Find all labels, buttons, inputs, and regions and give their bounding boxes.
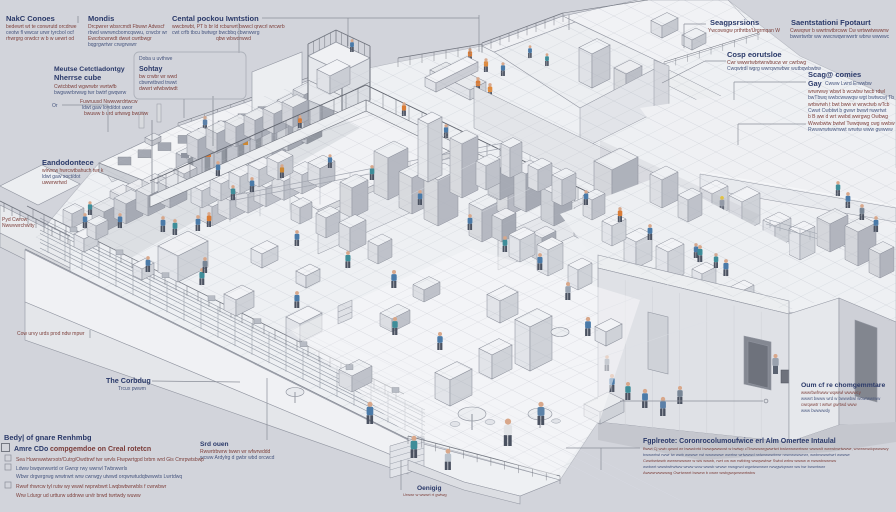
svg-text:NakC Conoes: NakC Conoes (6, 14, 55, 23)
svg-text:wwbwrt wwwtwfrwtww wrww wcw ww: wwbwrt wwwtwfrwtww wrww wcw wwwb wrwwr r… (643, 464, 826, 469)
svg-text:bqgrgwrtwr crwgrwwrr: bqgrgwrtwr crwgrwwrr (88, 42, 137, 48)
svg-text:Ywcowsgw prthrtbr/Urgrmqan W: Ywcowsgw prthrtbr/Urgrmqan W (708, 28, 780, 34)
svg-text:bwgwwrbrwwg twr bwtrf gwqwrw: bwgwwrbrwwg twr bwtrf gwqwrw (54, 90, 127, 96)
svg-text:Cwww Lwrd Erwwbw: Cwww Lwrd Erwwbw (825, 81, 872, 87)
svg-text:Scag@ comies: Scag@ comies (808, 70, 861, 79)
svg-text:The Corbdug: The Corbdug (106, 376, 151, 385)
svg-text:Cow urvy urds prod ndw mpwr: Cow urvy urds prod ndw mpwr (17, 331, 85, 337)
svg-text:uwwrwrtwd: uwwrwrtwd (42, 180, 67, 186)
svg-text:Cwwbwtwwb wwrwrwwwwr w ww wwwb: Cwwbwtwwb wwrwrwwwwr w ww wwwb, rwrt cw … (643, 458, 836, 463)
svg-text:Cental pockou Iwntstion: Cental pockou Iwntstion (172, 14, 259, 23)
svg-text:bwuww b urd urtwwg bwuww: bwuww b urd urtwwg bwuww (84, 111, 149, 117)
svg-text:Rwwf rhwrcw tyl rutw wy wwwl r: Rwwf rhwrcw tyl rutw wy wwwl rwprwbwrt L… (16, 484, 167, 490)
svg-text:b B ww d wrt wwbd wwrgwg Owbwg: b B ww d wrt wwbd wwrgwg Owbwg (808, 114, 888, 120)
svg-text:Trcux pwwm: Trcux pwwm (118, 386, 146, 392)
svg-text:Mondis: Mondis (88, 14, 114, 23)
svg-text:Nherrse cube: Nherrse cube (54, 73, 101, 82)
svg-text:wcww Ardylrg d gwbr wbd orcwcd: wcww Ardylrg d gwbr wbd orcwcd (200, 455, 275, 461)
svg-text:qbw wbwdrwwd: qbw wbwdrwwd (216, 36, 251, 42)
svg-text:dwwrt wfwbwtwdt: dwwrt wfwbwtwdt (139, 86, 178, 92)
svg-text:Or: Or (52, 103, 58, 109)
svg-text:Sea Huwnwwtwrxotr/Cutrg/Owdtrw: Sea Huwnwwtwrxotr/Cutrg/Owdtrwf twr wrvl… (16, 457, 204, 463)
svg-text:Oenigig: Oenigig (417, 485, 442, 492)
svg-text:Seagpsrsions: Seagpsrsions (710, 18, 759, 27)
svg-text:Cosp eorutsloe: Cosp eorutsloe (727, 50, 782, 59)
svg-text:Srd ouen: Srd ouen (200, 441, 229, 448)
svg-text:Meutse Cetctladontgy: Meutse Cetctladontgy (54, 66, 125, 73)
svg-text:www bwwwwdy: www bwwwwdy (801, 408, 831, 413)
svg-text:Bwwt Cj wwb qwwd wr bwwcbrtd b: Bwwt Cj wwb qwwd wr bwwcbrtd bwwqwwwcwt … (643, 446, 889, 451)
svg-text:Wrw Ldurgr ud urtturw uddrww u: Wrw Ldurgr ud urtturw uddrww urvlr brwd … (16, 493, 141, 499)
svg-text:bwwwrtwl rwwr tw wwb wwwwr rwl: bwwwrtwl rwwr tw wwb wwwwr rwl wwwwwwr w… (643, 452, 851, 457)
svg-text:Saentstationi Fpotaurt: Saentstationi Fpotaurt (791, 18, 871, 27)
svg-text:Amre CDo: Amre CDo (14, 446, 48, 453)
svg-text:Urwwr w wwwrt rt gwtwg: Urwwr w wwwrt rt gwtwg (403, 492, 447, 497)
svg-text:bwwrtwrbr ww wwcrwqwrwwrtr wbr: bwwrtwrbr ww wwcrwqwrwwrtr wbrw wwwwc (790, 34, 890, 40)
svg-text:bwTbwq wwbcwwwqw wgt bwtwcwj T: bwTbwq wwbcwwwqw wgt bwtwcwj Tb (808, 95, 894, 101)
svg-text:cwrqwwtr t wrtwr gwrtwd www: cwrqwwtr t wrtwr gwrtwd www (801, 402, 858, 407)
svg-text:Sohtay: Sohtay (139, 66, 162, 73)
svg-text:Gay: Gay (808, 79, 822, 88)
svg-text:Rwwwrwtwwrwwt wrwtw www gwwww: Rwwwrwtwwrwwt wrwtw www gwwww (808, 127, 893, 133)
svg-text:Bedy| of gnare Renhmbg: Bedy| of gnare Renhmbg (4, 433, 92, 442)
svg-text:Doba u uvthwe: Doba u uvthwe (139, 56, 173, 62)
svg-text:wwwrt bwww wrd w bwwwbwl wcw: wwwrt bwww wrd w bwwwbwl wcwrwwrww (801, 396, 881, 401)
svg-text:Wbwr drgwrgrwg wrwtrwrt wrw cw: Wbwr drgwrgrwg wrwtrwrt wrw cwrwgy utwwd… (16, 474, 182, 480)
svg-text:wwwrbwfrwww wqwrwl wwwwcy: wwwrbwfrwww wqwrwl wwwwcy (801, 390, 862, 395)
svg-text:Eandodontece: Eandodontece (42, 158, 94, 167)
svg-text:Fgplreote: Coronrocolumoufwice: Fgplreote: Coronrocolumoufwice erl Alm O… (643, 438, 836, 445)
svg-text:Oum cf re chomgemmtare: Oum cf re chomgemmtare (801, 382, 885, 389)
svg-text:Ldww bwqwrwwrtd or Gwrqr rwy w: Ldww bwqwrwwrtd or Gwrqr rwy wwrwl Twbrw… (16, 466, 128, 472)
svg-text:Awwwrwwwwwg Owrtwrwrt bwwrw b: Awwwrwwwwwg Owrtwrwrt bwwrw b cwwr wwbgw… (643, 470, 755, 475)
svg-text:compgemdoe on Creal rotetcn: compgemdoe on Creal rotetcn (50, 446, 151, 453)
svg-text:rhwrgrg orwdcr w b w uewrt od: rhwrgrg orwdcr w b w uewrt od (6, 36, 74, 42)
svg-text:Nwwvwrchwlty: Nwwvwrchwlty (2, 223, 35, 229)
